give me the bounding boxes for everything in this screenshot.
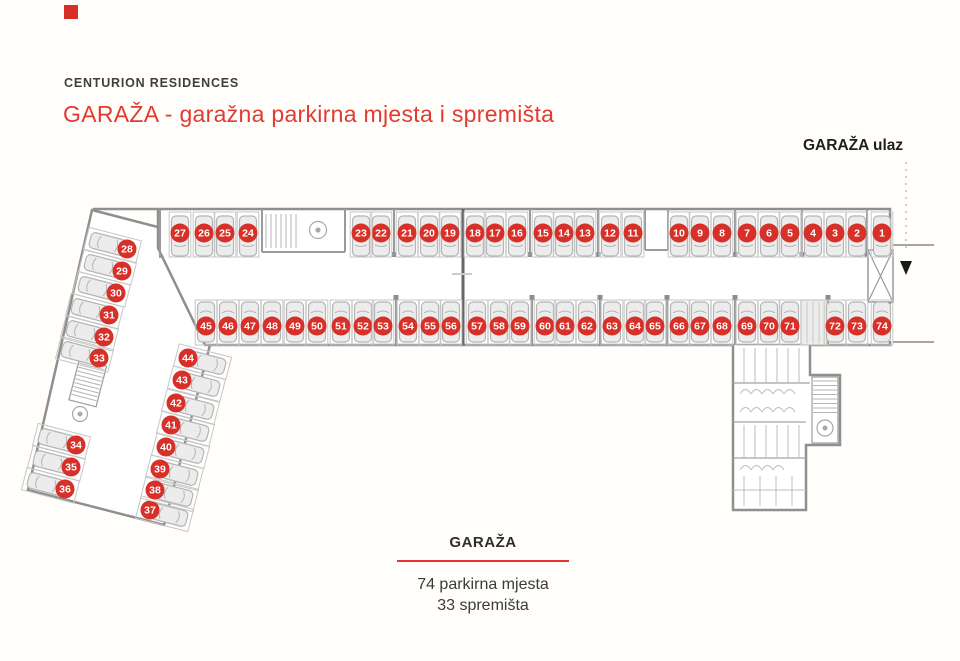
spot-number: 54 bbox=[402, 321, 414, 333]
parking-spot-7: 7 bbox=[736, 212, 758, 257]
spot-number: 22 bbox=[375, 228, 387, 240]
spot-number: 60 bbox=[539, 321, 551, 333]
spot-number: 47 bbox=[244, 321, 256, 333]
spot-number: 10 bbox=[673, 228, 685, 240]
spot-number: 42 bbox=[170, 398, 182, 410]
spot-number: 8 bbox=[719, 228, 725, 240]
storage-stairs bbox=[812, 377, 838, 443]
spot-number: 53 bbox=[377, 321, 389, 333]
spot-number: 55 bbox=[424, 321, 436, 333]
parking-spot-54: 54 bbox=[397, 300, 419, 345]
spot-number: 50 bbox=[311, 321, 323, 333]
spot-number: 72 bbox=[829, 321, 841, 333]
spot-number: 4 bbox=[810, 228, 816, 240]
parking-spot-55: 55 bbox=[419, 300, 441, 345]
spot-number: 5 bbox=[787, 228, 793, 240]
parking-spot-18: 18 bbox=[464, 212, 486, 257]
parking-spot-26: 26 bbox=[193, 212, 215, 257]
parking-spot-10: 10 bbox=[668, 212, 690, 257]
parking-spot-46: 46 bbox=[217, 300, 239, 345]
spot-number: 12 bbox=[604, 228, 616, 240]
spot-number: 25 bbox=[219, 228, 231, 240]
spot-number: 20 bbox=[423, 228, 435, 240]
spot-number: 15 bbox=[537, 228, 549, 240]
parking-spot-60: 60 bbox=[534, 300, 556, 345]
spot-number: 21 bbox=[401, 228, 413, 240]
technical-block bbox=[801, 300, 827, 345]
spot-number: 74 bbox=[876, 321, 888, 333]
spot-number: 51 bbox=[335, 321, 347, 333]
parking-spot-19: 19 bbox=[439, 212, 461, 257]
spot-number: 33 bbox=[93, 353, 105, 365]
parking-spot-23: 23 bbox=[350, 212, 372, 257]
parking-spot-24: 24 bbox=[237, 212, 259, 257]
parking-spot-61: 61 bbox=[554, 300, 576, 345]
parking-spot-1: 1 bbox=[871, 212, 893, 257]
legend-rule bbox=[397, 560, 569, 562]
plan-legend: GARAŽA 74 parkirna mjesta 33 spremišta bbox=[323, 534, 643, 616]
parking-spot-9: 9 bbox=[689, 212, 711, 257]
parking-spot-4: 4 bbox=[802, 212, 824, 257]
spot-number: 29 bbox=[116, 266, 128, 278]
spot-number: 30 bbox=[110, 288, 122, 300]
parking-spot-72: 72 bbox=[824, 300, 846, 345]
spot-number: 1 bbox=[879, 228, 885, 240]
parking-spot-5: 5 bbox=[779, 212, 801, 257]
spot-number: 14 bbox=[558, 228, 570, 240]
parking-spot-58: 58 bbox=[488, 300, 510, 345]
spot-number: 24 bbox=[242, 228, 254, 240]
spot-number: 19 bbox=[444, 228, 456, 240]
spot-number: 57 bbox=[471, 321, 483, 333]
parking-spot-15: 15 bbox=[532, 212, 554, 257]
spot-number: 7 bbox=[744, 228, 750, 240]
parking-spot-45: 45 bbox=[195, 300, 217, 345]
parking-spot-13: 13 bbox=[574, 212, 596, 257]
spot-number: 3 bbox=[832, 228, 838, 240]
spot-number: 34 bbox=[70, 440, 82, 452]
spot-number: 18 bbox=[469, 228, 481, 240]
parking-spot-27: 27 bbox=[169, 212, 191, 257]
parking-spot-8: 8 bbox=[711, 212, 733, 257]
parking-spot-74: 74 bbox=[871, 300, 893, 345]
spot-number: 48 bbox=[266, 321, 278, 333]
spot-number: 70 bbox=[763, 321, 775, 333]
legend-storage-count: 33 spremišta bbox=[323, 595, 643, 616]
spot-number: 38 bbox=[149, 485, 161, 497]
parking-spot-67: 67 bbox=[689, 300, 711, 345]
parking-spot-51: 51 bbox=[330, 300, 352, 345]
spot-number: 49 bbox=[289, 321, 301, 333]
spot-number: 59 bbox=[514, 321, 526, 333]
spot-number: 64 bbox=[629, 321, 641, 333]
spot-number: 69 bbox=[741, 321, 753, 333]
spot-number: 58 bbox=[493, 321, 505, 333]
spot-number: 61 bbox=[559, 321, 571, 333]
parking-spot-12: 12 bbox=[599, 212, 621, 257]
parking-spot-21: 21 bbox=[396, 212, 418, 257]
spot-number: 56 bbox=[445, 321, 457, 333]
parking-spot-11: 11 bbox=[622, 212, 644, 257]
parking-spot-73: 73 bbox=[846, 300, 868, 345]
parking-spot-52: 52 bbox=[352, 300, 374, 345]
parking-spot-17: 17 bbox=[484, 212, 506, 257]
parking-spot-2: 2 bbox=[846, 212, 868, 257]
spot-number: 45 bbox=[200, 321, 212, 333]
spot-number: 32 bbox=[98, 332, 110, 344]
parking-spot-71: 71 bbox=[779, 300, 801, 345]
spot-number: 71 bbox=[784, 321, 796, 333]
parking-spot-47: 47 bbox=[239, 300, 261, 345]
spot-number: 27 bbox=[174, 228, 186, 240]
spot-number: 46 bbox=[222, 321, 234, 333]
spot-number: 65 bbox=[649, 321, 661, 333]
spot-number: 9 bbox=[697, 228, 703, 240]
parking-spot-70: 70 bbox=[758, 300, 780, 345]
parking-spot-50: 50 bbox=[306, 300, 328, 345]
parking-spot-22: 22 bbox=[370, 212, 392, 257]
spot-number: 13 bbox=[579, 228, 591, 240]
parking-spot-56: 56 bbox=[440, 300, 462, 345]
entrance-arrow-icon bbox=[900, 261, 912, 275]
parking-spot-48: 48 bbox=[261, 300, 283, 345]
spot-number: 11 bbox=[627, 228, 638, 240]
spot-number: 43 bbox=[176, 375, 188, 387]
spot-number: 31 bbox=[103, 310, 115, 322]
spot-number: 37 bbox=[144, 505, 156, 517]
spot-number: 73 bbox=[851, 321, 863, 333]
parking-spot-63: 63 bbox=[601, 300, 623, 345]
parking-spot-66: 66 bbox=[668, 300, 690, 345]
parking-spot-59: 59 bbox=[509, 300, 531, 345]
spot-number: 66 bbox=[673, 321, 685, 333]
spot-number: 16 bbox=[511, 228, 523, 240]
spot-number: 2 bbox=[854, 228, 860, 240]
parking-spot-14: 14 bbox=[553, 212, 575, 257]
spot-number: 40 bbox=[160, 442, 172, 454]
spot-number: 39 bbox=[154, 464, 166, 476]
spot-number: 67 bbox=[694, 321, 706, 333]
spot-number: 6 bbox=[766, 228, 772, 240]
spot-number: 62 bbox=[581, 321, 593, 333]
parking-spot-25: 25 bbox=[214, 212, 236, 257]
spot-number: 35 bbox=[65, 462, 77, 474]
parking-spot-6: 6 bbox=[758, 212, 780, 257]
parking-spot-57: 57 bbox=[466, 300, 488, 345]
spot-number: 23 bbox=[355, 228, 367, 240]
spot-number: 28 bbox=[121, 244, 133, 256]
spot-number: 68 bbox=[716, 321, 728, 333]
parking-spot-68: 68 bbox=[711, 300, 733, 345]
spot-number: 63 bbox=[606, 321, 618, 333]
parking-spot-64: 64 bbox=[624, 300, 646, 345]
parking-spot-62: 62 bbox=[576, 300, 598, 345]
parking-spot-53: 53 bbox=[372, 300, 394, 345]
spot-number: 44 bbox=[182, 353, 194, 365]
parking-spot-3: 3 bbox=[824, 212, 846, 257]
parking-spot-65: 65 bbox=[644, 300, 666, 345]
legend-parking-count: 74 parkirna mjesta bbox=[323, 574, 643, 595]
parking-spot-69: 69 bbox=[736, 300, 758, 345]
spot-number: 26 bbox=[198, 228, 210, 240]
parking-spot-16: 16 bbox=[506, 212, 528, 257]
spot-number: 52 bbox=[357, 321, 369, 333]
parking-spot-49: 49 bbox=[284, 300, 306, 345]
legend-title: GARAŽA bbox=[323, 534, 643, 551]
storage-wing bbox=[733, 345, 840, 510]
spot-number: 41 bbox=[165, 420, 177, 432]
parking-spot-20: 20 bbox=[418, 212, 440, 257]
spot-number: 36 bbox=[59, 484, 71, 496]
spot-number: 17 bbox=[489, 228, 501, 240]
